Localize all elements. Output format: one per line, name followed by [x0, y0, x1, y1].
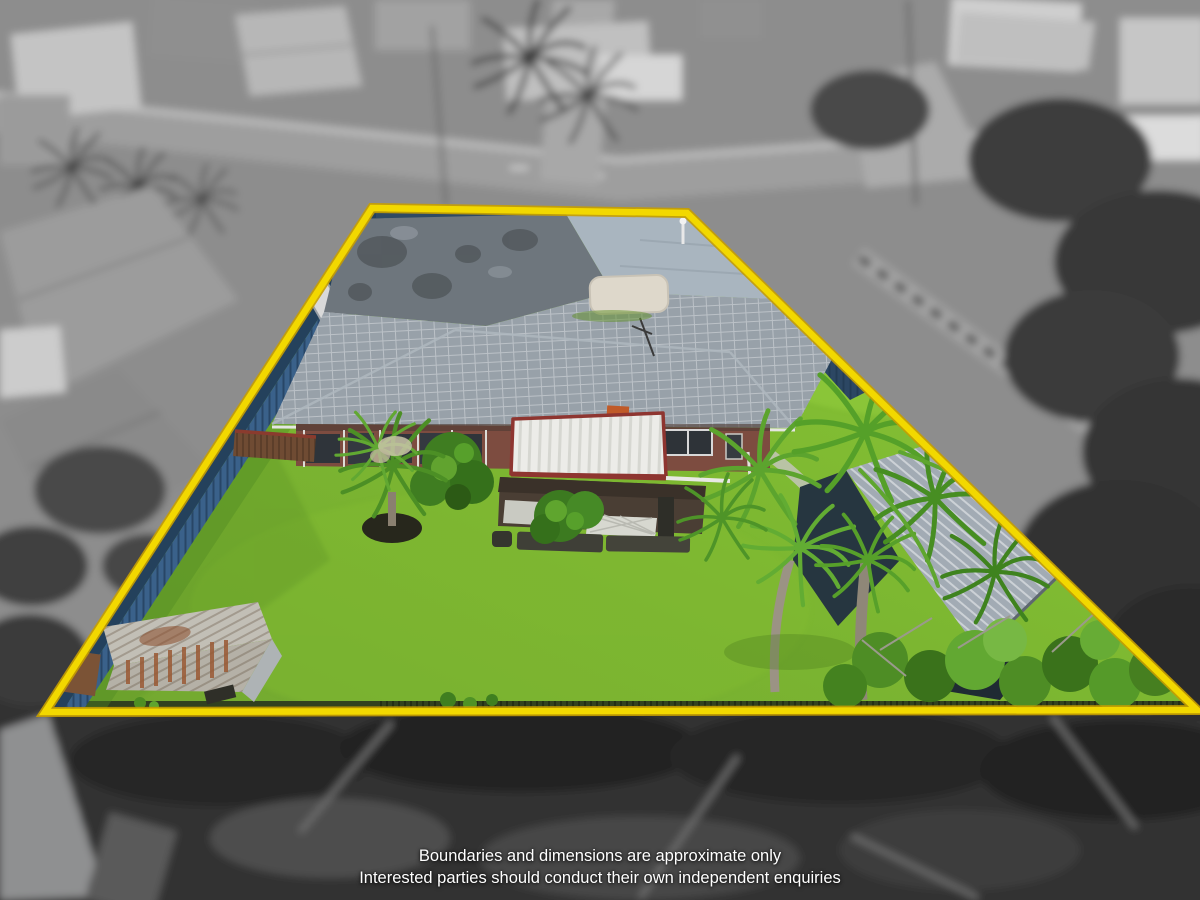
planters [658, 497, 674, 539]
aerial-photo: Boundaries and dimensions are approximat… [0, 0, 1200, 900]
disclaimer-line-1: Boundaries and dimensions are approximat… [0, 845, 1200, 867]
scene-canvas [0, 0, 1200, 900]
disclaimer-line-2: Interested parties should conduct their … [0, 867, 1200, 889]
concrete-slab [589, 275, 668, 315]
disclaimer: Boundaries and dimensions are approximat… [0, 845, 1200, 889]
